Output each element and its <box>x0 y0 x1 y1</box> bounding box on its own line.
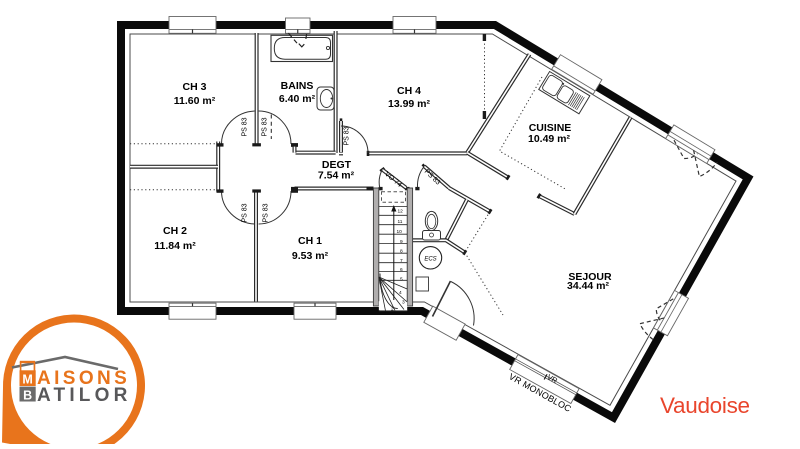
svg-text:1: 1 <box>377 307 380 313</box>
svg-text:11: 11 <box>398 219 403 225</box>
svg-text:12: 12 <box>398 209 404 215</box>
svg-text:CH 4: CH 4 <box>397 85 421 97</box>
svg-text:PS 83: PS 83 <box>242 203 249 222</box>
svg-text:CH 1: CH 1 <box>298 235 322 247</box>
svg-text:7.54 m²: 7.54 m² <box>318 170 355 182</box>
svg-text:ECS: ECS <box>424 257 436 263</box>
svg-text:3: 3 <box>402 300 405 306</box>
svg-text:PS 83: PS 83 <box>344 126 351 145</box>
svg-text:6: 6 <box>400 267 403 273</box>
svg-text:ATILOR: ATILOR <box>37 385 132 406</box>
svg-text:PS 83: PS 83 <box>263 203 270 222</box>
svg-text:9: 9 <box>400 239 403 245</box>
svg-text:10.49 m²: 10.49 m² <box>528 133 571 145</box>
svg-text:PS 83: PS 83 <box>262 117 269 136</box>
svg-text:5: 5 <box>400 277 403 283</box>
svg-text:34.44 m²: 34.44 m² <box>567 280 610 292</box>
svg-text:M: M <box>22 373 32 387</box>
svg-text:13.99 m²: 13.99 m² <box>388 98 431 110</box>
svg-text:CH 3: CH 3 <box>183 81 207 93</box>
svg-text:PS 83: PS 83 <box>242 117 249 136</box>
svg-text:9.53 m²: 9.53 m² <box>292 250 329 262</box>
svg-text:8: 8 <box>400 249 403 255</box>
svg-text:11.84 m²: 11.84 m² <box>154 240 196 252</box>
svg-text:CH 2: CH 2 <box>163 225 187 237</box>
svg-text:2: 2 <box>391 307 394 313</box>
svg-text:10: 10 <box>397 229 403 235</box>
svg-text:4: 4 <box>399 290 402 296</box>
svg-text:B: B <box>23 389 32 403</box>
svg-text:Vaudoise: Vaudoise <box>660 393 750 418</box>
svg-text:7: 7 <box>400 258 403 264</box>
svg-text:BAINS: BAINS <box>281 80 314 92</box>
svg-text:6.40 m²: 6.40 m² <box>279 93 316 105</box>
svg-text:11.60 m²: 11.60 m² <box>174 95 216 107</box>
